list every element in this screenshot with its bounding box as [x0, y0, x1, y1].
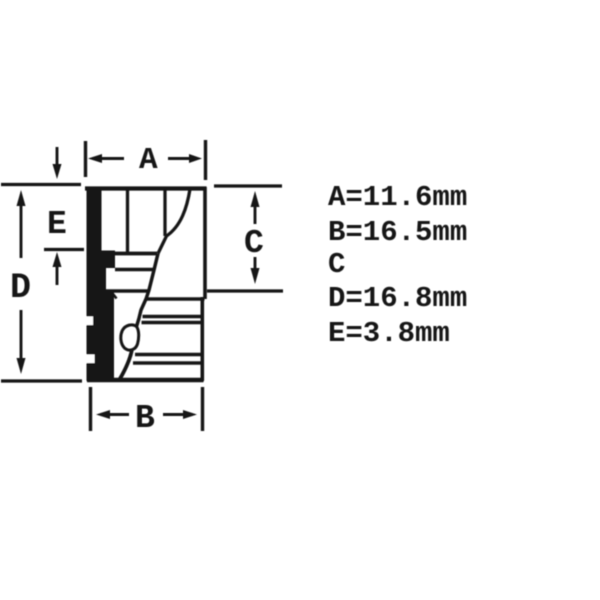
svg-text:A=11.6mm: A=11.6mm: [328, 181, 467, 214]
svg-text:D=16.8mm: D=16.8mm: [328, 282, 467, 315]
svg-text:E=3.8mm: E=3.8mm: [328, 317, 450, 350]
svg-text:A: A: [139, 143, 158, 178]
svg-text:B=16.5mm: B=16.5mm: [328, 216, 467, 249]
svg-text:C: C: [328, 248, 345, 281]
svg-text:B: B: [135, 400, 155, 437]
svg-text:D: D: [10, 268, 31, 308]
svg-text:C: C: [244, 225, 264, 262]
svg-text:E: E: [47, 206, 67, 243]
